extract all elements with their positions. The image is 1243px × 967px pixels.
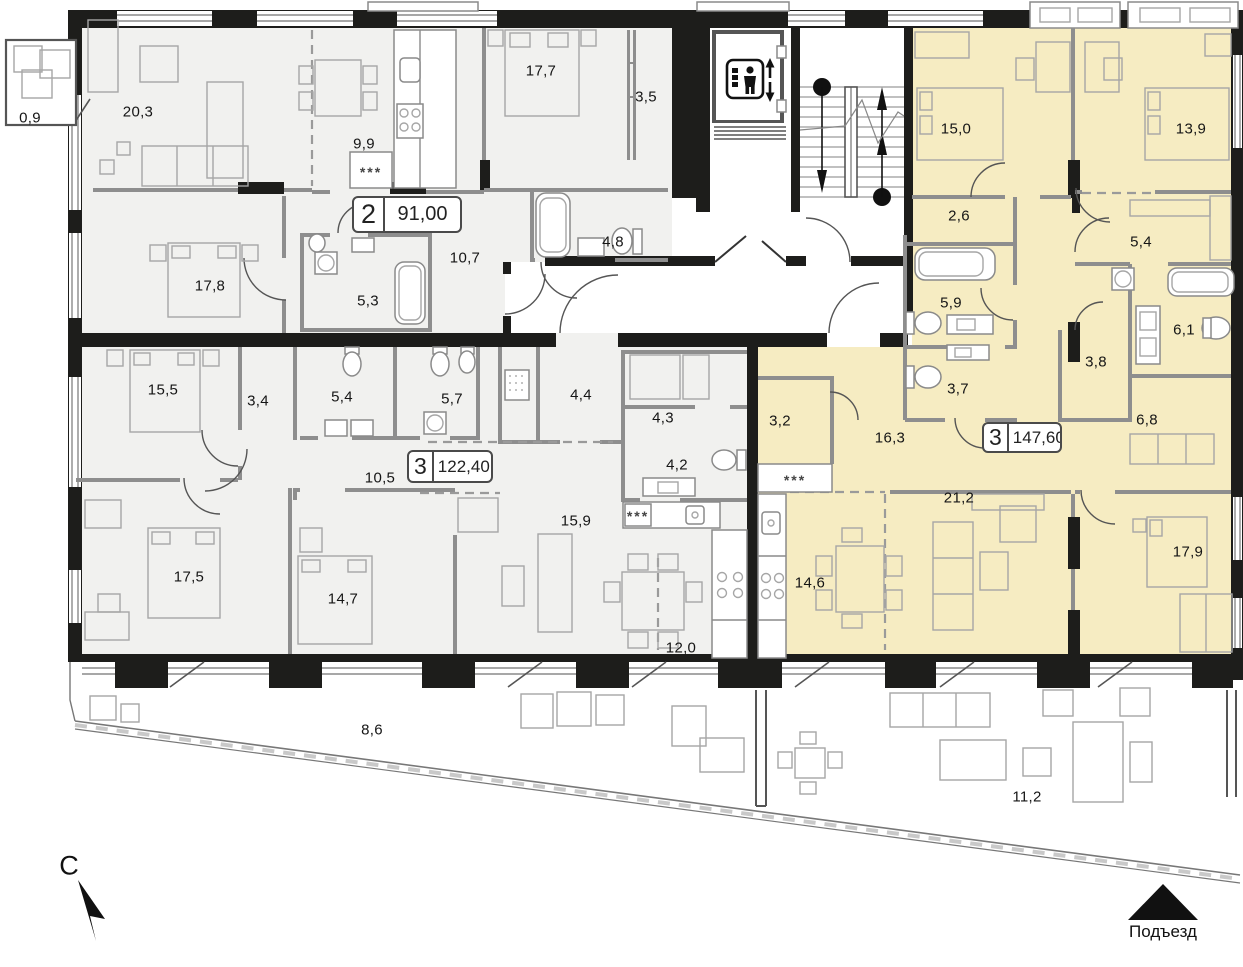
stove-mark: ***: [627, 508, 649, 524]
room-area-label: 15,9: [561, 514, 591, 529]
apartment-rooms-count: 2: [354, 198, 385, 231]
terrace-boundary: [70, 662, 1240, 883]
room-area-label: 12,0: [666, 641, 696, 656]
entrance-label: Подъезд: [1129, 922, 1197, 942]
apartment-badge-147[interactable]: 3 147,60: [982, 422, 1062, 453]
room-area-label: 13,9: [1176, 122, 1206, 137]
apartment-area: 122,40: [434, 452, 493, 481]
room-area-label: 4,8: [602, 235, 624, 250]
room-area-label: 10,5: [365, 471, 395, 486]
room-area-label: 14,7: [328, 592, 358, 607]
room-area-label: 4,4: [570, 388, 592, 403]
room-area-label: 0,9: [19, 111, 41, 126]
floor-plan-drawing: [0, 0, 1243, 967]
room-area-label: 5,9: [940, 296, 962, 311]
stove-mark: ***: [784, 472, 806, 488]
room-area-label: 5,4: [1130, 235, 1152, 250]
room-area-label: 4,2: [666, 458, 688, 473]
room-area-label: 16,3: [875, 431, 905, 446]
room-area-label: 17,9: [1173, 545, 1203, 560]
room-area-label: 17,8: [195, 279, 225, 294]
room-area-label: 2,6: [948, 209, 970, 224]
apartment-area: 147,60: [1009, 424, 1062, 451]
room-area-label: 20,3: [123, 105, 153, 120]
room-area-label: 21,2: [944, 491, 974, 506]
room-area-label: 9,9: [353, 137, 375, 152]
room-area-label: 5,4: [331, 390, 353, 405]
elevator: [712, 32, 788, 142]
room-area-label: 15,0: [941, 122, 971, 137]
room-area-label: 3,4: [247, 394, 269, 409]
room-area-label: 6,1: [1173, 323, 1195, 338]
room-area-label: 15,5: [148, 383, 178, 398]
floor-plan: 0,9 20,3 9,9 17,7 3,5 17,8 10,7 4,8 5,3 …: [0, 0, 1243, 967]
apartment-badge-91[interactable]: 2 91,00: [352, 196, 462, 233]
room-area-label: 3,8: [1085, 355, 1107, 370]
room-area-label: 17,7: [526, 64, 556, 79]
room-area-label: 3,7: [947, 382, 969, 397]
room-area-label: 3,5: [635, 90, 657, 105]
room-area-label: 11,2: [1012, 790, 1041, 805]
apartment-badge-122[interactable]: 3 122,40: [407, 450, 493, 483]
room-area-label: 14,6: [795, 576, 825, 591]
room-area-label: 6,8: [1136, 413, 1158, 428]
apartment-area: 91,00: [385, 198, 460, 231]
room-area-label: 5,3: [357, 294, 379, 309]
room-area-label: 10,7: [450, 251, 480, 266]
room-area-label: 8,6: [361, 723, 383, 738]
entrance-triangle-icon: [1128, 884, 1198, 920]
balcony: [6, 40, 76, 125]
stove-mark: ***: [360, 164, 382, 180]
north-label: С: [59, 851, 79, 882]
apartment-rooms-count: 3: [409, 452, 434, 481]
north-arrow-icon: [78, 880, 105, 941]
room-area-label: 3,2: [769, 414, 791, 429]
room-area-label: 5,7: [441, 392, 463, 407]
room-area-label: 4,3: [652, 411, 674, 426]
room-area-label: 17,5: [174, 570, 204, 585]
apartment-rooms-count: 3: [984, 424, 1009, 451]
